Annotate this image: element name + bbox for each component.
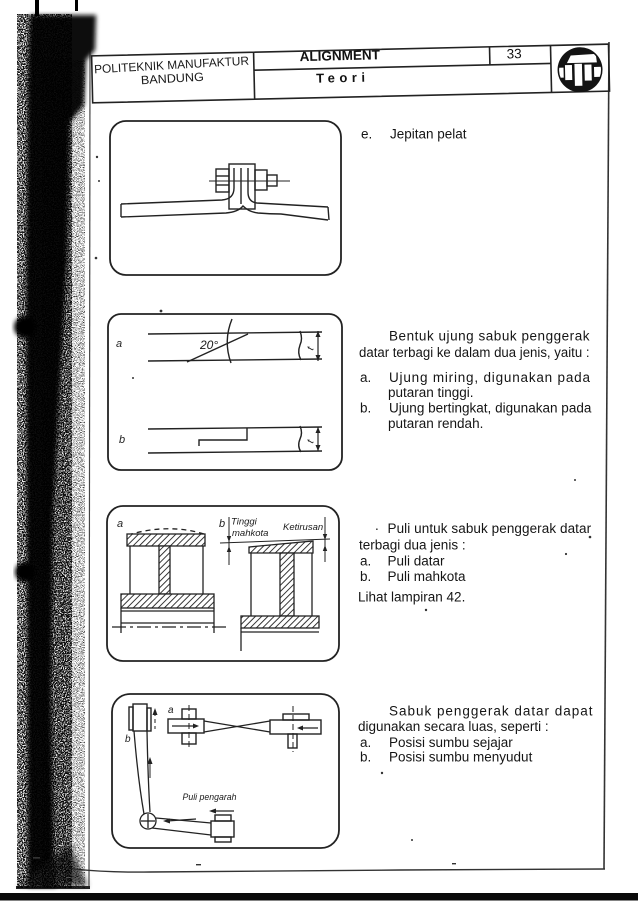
svg-text:Sabuk penggerak datar dapat: Sabuk penggerak datar dapat — [389, 704, 593, 719]
svg-text:b: b — [219, 518, 225, 530]
svg-text:b.: b. — [360, 569, 371, 584]
svg-text:e.: e. — [361, 127, 372, 142]
svg-text:Ujung bertingkat, digunakan pa: Ujung bertingkat, digunakan pada — [389, 401, 592, 416]
svg-text:a.: a. — [360, 735, 371, 750]
svg-text:datar terbagi ke dalam dua jen: datar terbagi ke dalam dua jenis, yaitu … — [359, 345, 590, 360]
svg-text:mahkota: mahkota — [232, 528, 268, 539]
svg-text:.: . — [375, 518, 379, 533]
svg-text:b.: b. — [360, 401, 371, 416]
svg-text:b: b — [125, 734, 131, 745]
svg-text:Posisi sumbu sejajar: Posisi sumbu sejajar — [389, 735, 513, 750]
svg-text:Teori: Teori — [316, 70, 370, 86]
svg-text:a.: a. — [360, 554, 371, 569]
svg-text:Puli datar: Puli datar — [388, 554, 446, 569]
svg-text:Ketirusan: Ketirusan — [283, 522, 323, 533]
svg-text:20°: 20° — [199, 338, 218, 352]
svg-text:a: a — [117, 518, 123, 530]
svg-text:Puli mahkota: Puli mahkota — [388, 569, 467, 584]
svg-text:terbagi dua jenis :: terbagi dua jenis : — [359, 538, 466, 553]
svg-text:Jepitan pelat: Jepitan pelat — [390, 127, 467, 142]
svg-text:putaran rendah.: putaran rendah. — [388, 416, 483, 431]
svg-text:a.: a. — [360, 370, 371, 385]
svg-text:Puli untuk sabuk penggerak dat: Puli untuk sabuk penggerak datar — [388, 521, 592, 536]
svg-text:b.: b. — [360, 750, 371, 765]
svg-text:b: b — [119, 434, 125, 446]
svg-text:a: a — [168, 705, 174, 716]
svg-text:33: 33 — [507, 46, 522, 61]
svg-text:Puli pengarah: Puli pengarah — [183, 792, 237, 803]
svg-text:Lihat lampiran 42.: Lihat lampiran 42. — [358, 590, 465, 605]
svg-text:Posisi sumbu menyudut: Posisi sumbu menyudut — [389, 750, 533, 765]
svg-text:Ujung miring, digunakan pada: Ujung miring, digunakan pada — [389, 370, 590, 385]
svg-text:digunakan secara luas, seperti: digunakan secara luas, seperti : — [358, 719, 549, 734]
svg-text:putaran tinggi.: putaran tinggi. — [388, 385, 474, 400]
svg-text:ALIGNMENT: ALIGNMENT — [300, 47, 381, 64]
svg-text:Bentuk ujung sabuk penggerak: Bentuk ujung sabuk penggerak — [389, 329, 590, 344]
svg-text:Tinggi: Tinggi — [231, 517, 258, 528]
svg-text:a: a — [116, 338, 122, 350]
